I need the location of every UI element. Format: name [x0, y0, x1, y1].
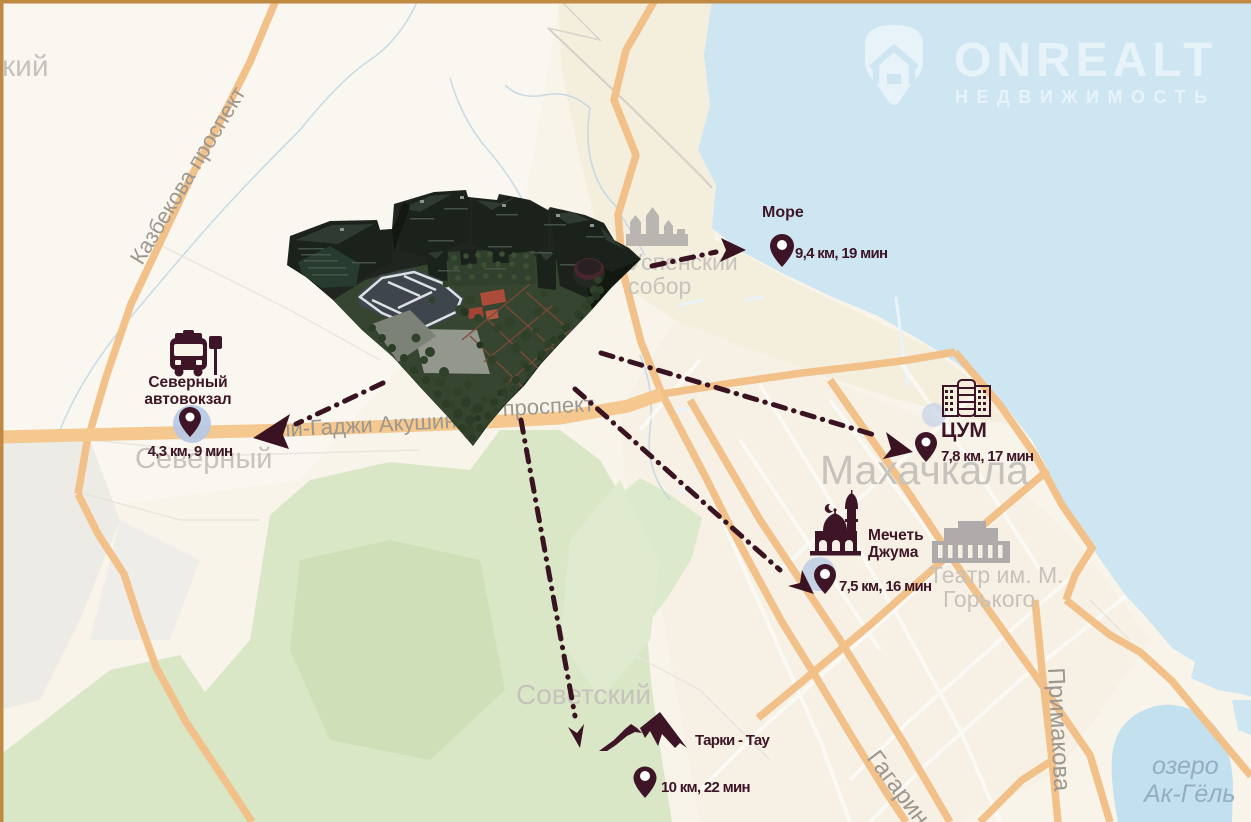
svg-text:10 км, 22 мин: 10 км, 22 мин	[661, 779, 751, 796]
svg-text:Тарки - Тау: Тарки - Тау	[695, 732, 770, 749]
svg-text:7,8 км, 17 мин: 7,8 км, 17 мин	[941, 448, 1034, 465]
svg-text:ONREALT: ONREALT	[954, 34, 1217, 87]
svg-text:НЕДВИЖИМОСТЬ: НЕДВИЖИМОСТЬ	[955, 87, 1215, 107]
svg-text:7,5 км, 16 мин: 7,5 км, 16 мин	[839, 578, 932, 595]
svg-text:Театр им. М.: Театр им. М.	[929, 562, 1064, 588]
svg-text:автовокзал: автовокзал	[144, 391, 231, 408]
svg-text:9,4 км, 19 мин: 9,4 км, 19 мин	[795, 245, 888, 262]
svg-text:Мечеть: Мечеть	[868, 527, 924, 544]
svg-text:Советский: Советский	[516, 679, 651, 710]
svg-text:собор: собор	[628, 273, 691, 299]
svg-text:кий: кий	[2, 50, 49, 83]
svg-text:Северный: Северный	[148, 374, 227, 391]
svg-text:озеро: озеро	[1152, 752, 1219, 780]
svg-text:4,3 км, 9 мин: 4,3 км, 9 мин	[148, 443, 233, 460]
svg-text:Море: Море	[762, 204, 804, 221]
svg-text:Джума: Джума	[868, 544, 919, 561]
svg-text:ЦУМ: ЦУМ	[941, 419, 987, 442]
svg-text:Успенский: Успенский	[628, 249, 738, 275]
svg-text:Ак-Гёль: Ак-Гёль	[1142, 780, 1236, 808]
svg-text:Горького: Горького	[943, 586, 1035, 612]
